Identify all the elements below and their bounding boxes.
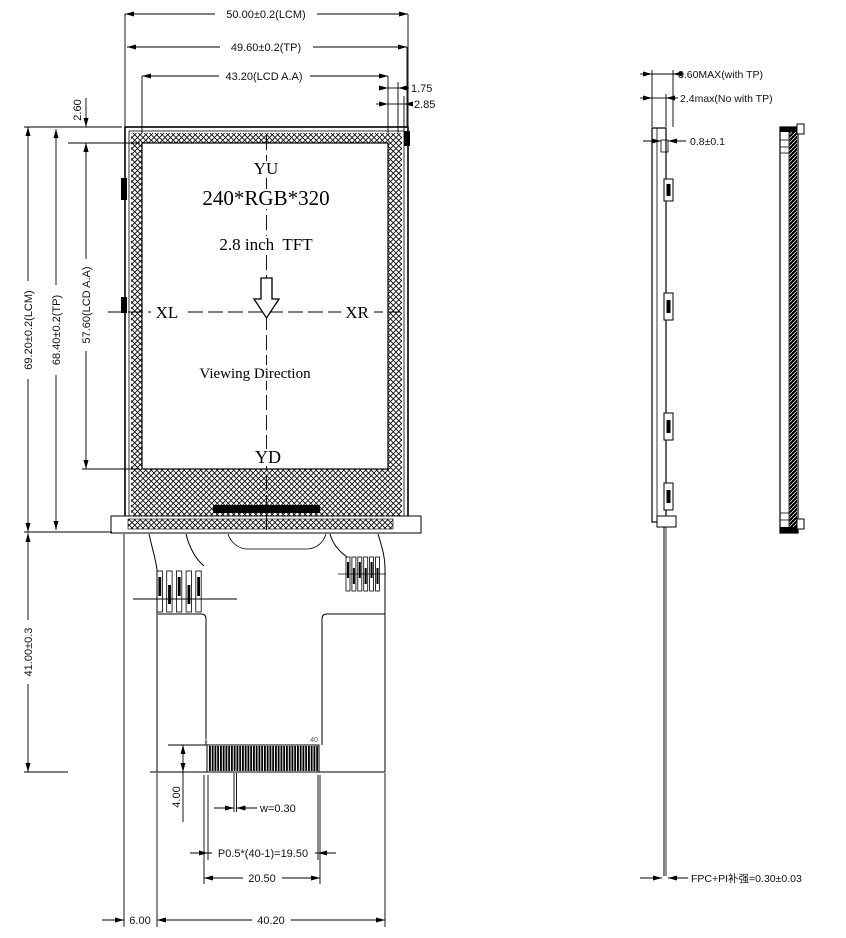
dim-fpc-offset: 6.00	[129, 915, 150, 927]
pin-40-label: 40	[310, 737, 318, 744]
rear-tab-top	[797, 124, 804, 134]
label-size: 2.8 inch TFT	[219, 235, 313, 254]
left-tab-2	[121, 297, 127, 313]
label-xr: XR	[345, 303, 369, 322]
dim-fpc-length: 41.00±0.3	[23, 628, 35, 677]
label-resolution: 240*RGB*320	[202, 186, 329, 210]
dim-pitch: P0.5*(40-1)=19.50	[218, 848, 308, 860]
dim-connector-height: 4.00	[171, 786, 183, 807]
dim-thickness-with-tp: 3.60MAX(with TP)	[678, 69, 763, 81]
dim-lcm-height: 69.20±0.2(LCM)	[23, 290, 35, 369]
fpc-tail: 1 40	[133, 534, 386, 772]
dim-step: 0.8±0.1	[690, 136, 725, 148]
right-tab	[404, 131, 410, 146]
drawing-canvas: YU 240*RGB*320 2.8 inch TFT XL XR Viewin…	[0, 0, 846, 938]
left-tab-1	[121, 178, 127, 200]
dim-connector-width: 20.50	[248, 873, 276, 885]
lcd-mechanical-drawing: YU 240*RGB*320 2.8 inch TFT XL XR Viewin…	[0, 0, 846, 938]
dim-thickness-no-tp: 2.4max(No with TP)	[680, 93, 773, 105]
dim-lcm-width: 50.00±0.2(LCM)	[226, 9, 305, 21]
dim-tp-width: 49.60±0.2(TP)	[231, 42, 301, 54]
label-yd: YD	[255, 447, 281, 467]
connector-fingers	[208, 746, 318, 771]
side-view	[652, 124, 804, 876]
label-yu: YU	[254, 159, 279, 178]
pin-1-label: 1	[204, 737, 208, 744]
dim-gap1: 1.75	[411, 83, 432, 95]
right-pad-array	[338, 557, 386, 591]
dim-top-margin: 2.60	[72, 99, 84, 120]
label-viewing-direction: Viewing Direction	[199, 366, 311, 382]
front-view: YU 240*RGB*320 2.8 inch TFT XL XR Viewin…	[108, 127, 421, 533]
dim-fpc-thickness: FPC+PI补强=0.30±0.03	[691, 872, 802, 885]
left-pad-array	[133, 571, 237, 612]
dim-tp-height: 68.40±0.2(TP)	[51, 295, 63, 365]
dim-fpc-width: 40.20	[257, 915, 285, 927]
side-foot	[657, 516, 676, 527]
ledge-hatch	[128, 519, 393, 529]
rear-tab-bottom	[797, 519, 804, 529]
dim-aa-height: 57.60(LCD A.A)	[81, 266, 93, 343]
label-xl: XL	[156, 303, 179, 322]
dim-aa-width: 43.20(LCD A.A)	[225, 71, 302, 83]
dim-finger-width: w=0.30	[259, 803, 296, 815]
dim-gap2: 2.85	[414, 99, 435, 111]
